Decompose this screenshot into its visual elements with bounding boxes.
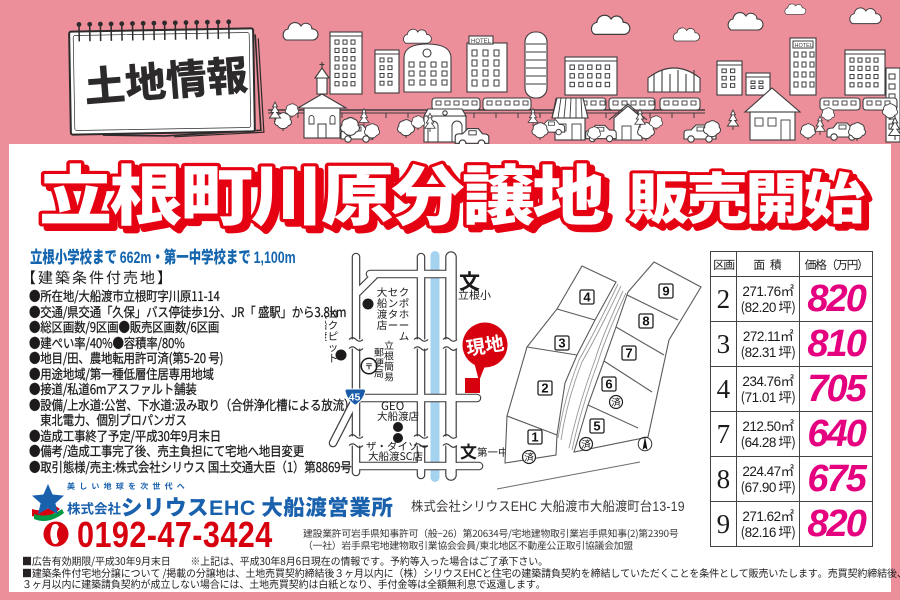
svg-text:45: 45 xyxy=(349,392,361,404)
svg-text:8: 8 xyxy=(642,314,649,329)
svg-text:済: 済 xyxy=(581,437,591,451)
svg-text:HOTEL: HOTEL xyxy=(795,43,813,49)
svg-text:クポホーム: クポホーム xyxy=(399,285,410,344)
svg-text:2: 2 xyxy=(541,381,548,396)
svg-text:立根小: 立根小 xyxy=(458,287,491,303)
svg-text:9: 9 xyxy=(662,284,669,299)
svg-text:3: 3 xyxy=(558,336,565,351)
svg-text:立根町川原分譲地: 立根町川原分譲地 xyxy=(39,144,605,238)
svg-text:販売開始: 販売開始 xyxy=(628,154,866,234)
svg-text:1: 1 xyxy=(531,430,538,445)
svg-text:立根簡易: 立根簡易 xyxy=(384,337,394,384)
svg-text:済: 済 xyxy=(524,450,534,464)
svg-text:大船渡店: 大船渡店 xyxy=(377,409,419,424)
svg-text:郵便局: 郵便局 xyxy=(374,344,384,380)
svg-text:センター: センター xyxy=(388,285,399,333)
svg-text:大船渡SC店: 大船渡SC店 xyxy=(368,449,423,464)
svg-text:5: 5 xyxy=(593,419,600,434)
svg-text:6: 6 xyxy=(605,377,612,392)
svg-text:〒: 〒 xyxy=(365,361,374,373)
svg-text:済: 済 xyxy=(611,395,621,409)
svg-text:文: 文 xyxy=(460,438,477,463)
svg-text:土地情報: 土地情報 xyxy=(82,41,250,114)
svg-text:大船渡店: 大船渡店 xyxy=(377,285,388,333)
svg-text:4: 4 xyxy=(583,290,591,305)
svg-text:HOTEL: HOTEL xyxy=(471,39,492,45)
svg-text:7: 7 xyxy=(625,346,632,361)
